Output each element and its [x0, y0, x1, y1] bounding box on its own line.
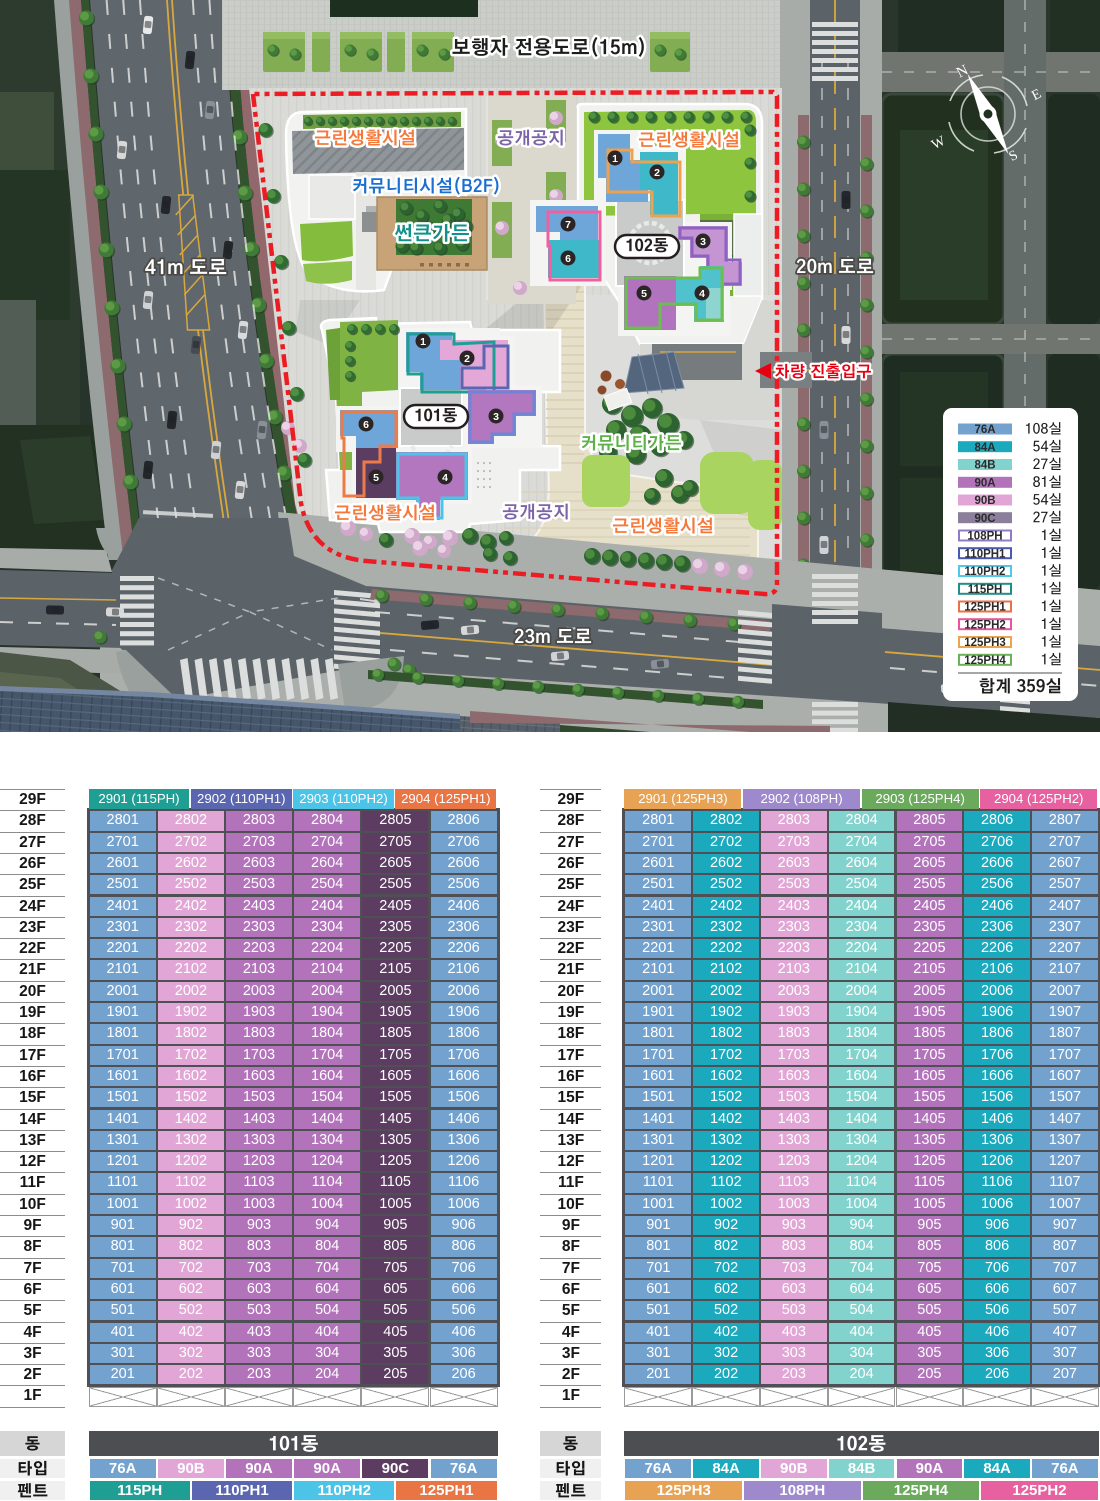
svg-text:7: 7	[565, 219, 571, 231]
svg-text:3: 3	[700, 236, 706, 248]
svg-text:110PH1: 110PH1	[965, 548, 1007, 560]
svg-text:6: 6	[565, 253, 571, 265]
svg-text:110PH2: 110PH2	[965, 566, 1006, 578]
svg-text:84B: 84B	[974, 460, 995, 472]
svg-text:108PH: 108PH	[967, 531, 1002, 543]
svg-text:1: 1	[420, 336, 426, 348]
svg-text:2: 2	[464, 353, 470, 365]
svg-text:5: 5	[373, 472, 379, 484]
svg-text:5: 5	[641, 288, 647, 300]
svg-text:2: 2	[654, 167, 660, 179]
svg-text:125PH2: 125PH2	[964, 619, 1006, 631]
svg-text:115PH: 115PH	[968, 584, 1003, 596]
svg-text:4: 4	[699, 288, 705, 300]
svg-text:3: 3	[493, 411, 499, 423]
svg-text:90C: 90C	[974, 513, 995, 525]
svg-text:125PH1: 125PH1	[964, 602, 1006, 614]
svg-text:90A: 90A	[974, 477, 995, 489]
svg-text:4: 4	[442, 472, 448, 484]
svg-text:125PH4: 125PH4	[964, 655, 1006, 667]
svg-text:1: 1	[612, 153, 618, 165]
svg-text:76A: 76A	[974, 424, 995, 436]
svg-text:84A: 84A	[974, 442, 995, 454]
svg-text:125PH3: 125PH3	[964, 637, 1006, 649]
svg-text:6: 6	[363, 419, 369, 431]
svg-text:90B: 90B	[974, 495, 995, 507]
